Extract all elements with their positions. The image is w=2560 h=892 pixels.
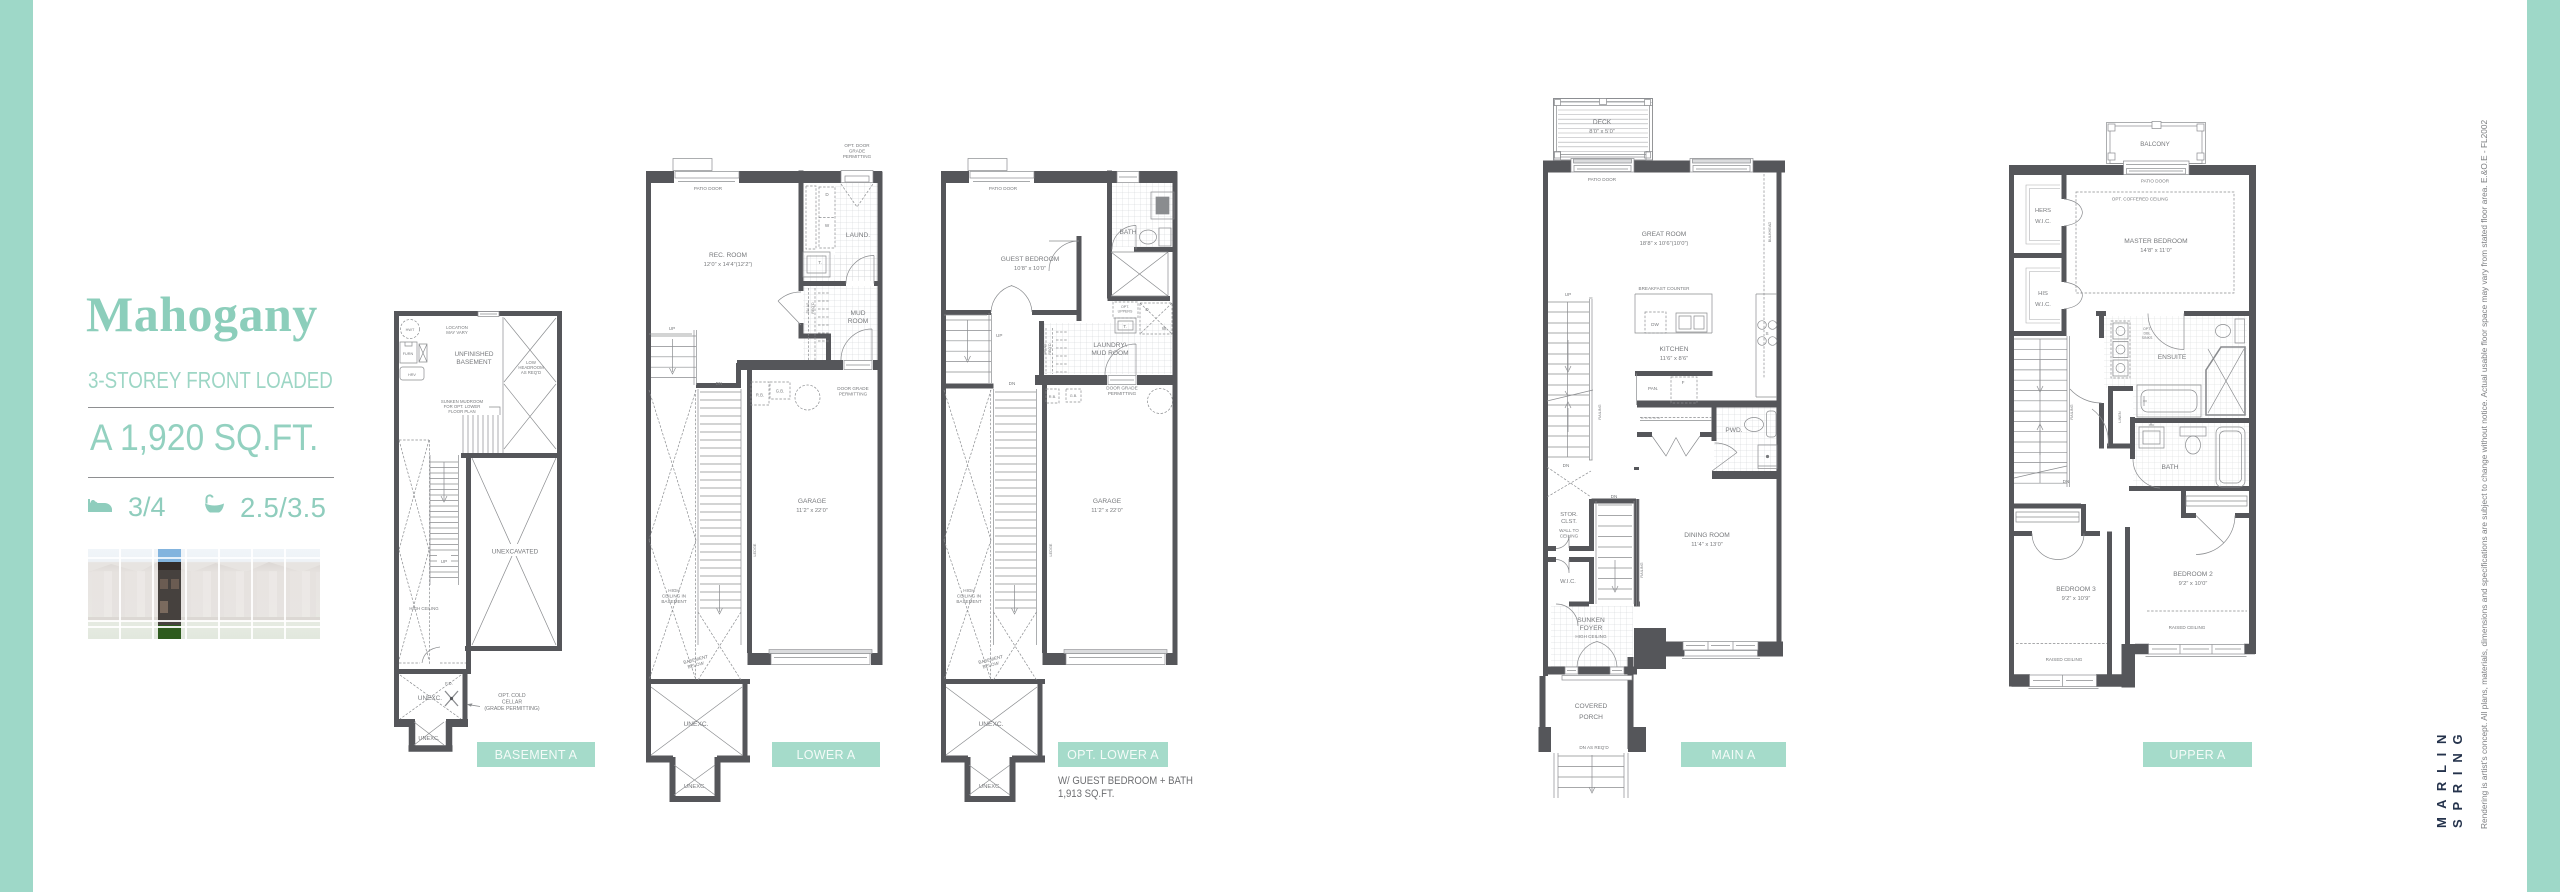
svg-text:RAISED CEILING: RAISED CEILING bbox=[2169, 625, 2206, 630]
svg-text:DN AS REQ’D: DN AS REQ’D bbox=[1579, 745, 1609, 750]
svg-text:GUEST BEDROOM: GUEST BEDROOM bbox=[1001, 256, 1060, 263]
svg-text:DINING ROOM: DINING ROOM bbox=[1684, 532, 1729, 539]
svg-text:11’2” x 22’0”: 11’2” x 22’0” bbox=[1091, 508, 1123, 514]
svg-text:UP: UP bbox=[669, 326, 675, 331]
svg-text:BATH: BATH bbox=[1119, 229, 1136, 236]
svg-text:GRADE: GRADE bbox=[849, 149, 865, 154]
svg-text:DN AS: DN AS bbox=[1043, 343, 1047, 354]
svg-text:FLOOR PLAN: FLOOR PLAN bbox=[448, 409, 475, 414]
svg-text:DBL: DBL bbox=[2144, 332, 2151, 336]
svg-text:UNEXC.: UNEXC. bbox=[979, 784, 1001, 790]
svg-text:OPT.: OPT. bbox=[1121, 305, 1129, 309]
svg-text:HERS: HERS bbox=[2035, 208, 2051, 214]
svg-text:UNEXC.: UNEXC. bbox=[684, 721, 709, 728]
svg-text:10’8” x 10’0”: 10’8” x 10’0” bbox=[1014, 266, 1046, 272]
svg-text:W: W bbox=[1162, 326, 1167, 331]
svg-text:PWD.: PWD. bbox=[1725, 427, 1742, 434]
svg-text:DW: DW bbox=[1651, 322, 1659, 327]
svg-text:S: S bbox=[1765, 331, 1768, 336]
svg-text:REQ’D: REQ’D bbox=[811, 302, 815, 314]
svg-text:BEDROOM 3: BEDROOM 3 bbox=[2056, 586, 2096, 593]
svg-text:OPT. COFFERED CEILING: OPT. COFFERED CEILING bbox=[2112, 197, 2169, 202]
svg-text:DOOR GRADE: DOOR GRADE bbox=[837, 386, 868, 391]
svg-text:T.: T. bbox=[818, 260, 822, 265]
svg-text:DN: DN bbox=[1563, 463, 1570, 468]
svg-text:RAILING: RAILING bbox=[1640, 562, 1644, 577]
svg-text:BULKHEAD: BULKHEAD bbox=[1768, 222, 1772, 243]
svg-text:HIGH: HIGH bbox=[963, 588, 974, 593]
svg-text:UP: UP bbox=[1565, 292, 1571, 297]
svg-text:W: W bbox=[825, 223, 830, 228]
svg-text:ENSUITE: ENSUITE bbox=[2158, 354, 2187, 361]
svg-text:SUNKEN: SUNKEN bbox=[1577, 617, 1605, 624]
svg-text:BASEMENT: BASEMENT bbox=[956, 599, 981, 604]
svg-text:UNEXCAVATED: UNEXCAVATED bbox=[492, 549, 539, 556]
svg-text:(GRADE PERMITTING): (GRADE PERMITTING) bbox=[484, 706, 540, 712]
svg-text:DECK: DECK bbox=[1593, 119, 1612, 126]
svg-text:OPT.: OPT. bbox=[2143, 327, 2151, 331]
svg-text:GREAT ROOM: GREAT ROOM bbox=[1642, 231, 1686, 238]
svg-text:RAILING: RAILING bbox=[1598, 404, 1602, 419]
svg-text:PATIO DOOR: PATIO DOOR bbox=[1588, 177, 1617, 182]
svg-text:MUD: MUD bbox=[850, 310, 865, 317]
svg-text:CEILING: CEILING bbox=[1560, 534, 1579, 539]
svg-text:CELLAR: CELLAR bbox=[502, 700, 522, 706]
svg-text:D: D bbox=[825, 192, 829, 197]
svg-text:LEDGE: LEDGE bbox=[1049, 543, 1053, 556]
svg-text:BASEMENT: BASEMENT bbox=[456, 359, 491, 366]
svg-text:UNEXC.: UNEXC. bbox=[418, 736, 440, 742]
svg-text:UPPERS: UPPERS bbox=[1118, 310, 1133, 314]
svg-text:9’2” x 10’0”: 9’2” x 10’0” bbox=[2179, 581, 2208, 587]
svg-text:G.B.: G.B. bbox=[1070, 394, 1078, 398]
svg-text:MASTER BEDROOM: MASTER BEDROOM bbox=[2124, 238, 2187, 245]
svg-text:PATIO DOOR: PATIO DOOR bbox=[694, 186, 723, 191]
svg-text:12’0” x 14’4”(12’2”): 12’0” x 14’4”(12’2”) bbox=[704, 262, 753, 268]
svg-text:D: D bbox=[1145, 307, 1149, 312]
svg-text:LAUND.: LAUND. bbox=[846, 232, 870, 239]
svg-text:DN: DN bbox=[2063, 479, 2070, 484]
svg-text:HIS: HIS bbox=[2038, 291, 2048, 297]
svg-text:LAUNDRY\: LAUNDRY\ bbox=[1093, 342, 1126, 349]
svg-text:CEILING IN: CEILING IN bbox=[957, 594, 981, 599]
svg-text:HWT: HWT bbox=[406, 328, 415, 332]
svg-text:SINKS: SINKS bbox=[2142, 336, 2153, 340]
svg-text:KITCHEN: KITCHEN bbox=[1660, 346, 1689, 353]
svg-text:GARAGE: GARAGE bbox=[798, 498, 827, 505]
svg-text:F: F bbox=[1682, 380, 1685, 385]
svg-text:GARAGE: GARAGE bbox=[1093, 498, 1122, 505]
svg-text:ROOM: ROOM bbox=[848, 318, 869, 325]
svg-text:CLST.: CLST. bbox=[1561, 519, 1577, 525]
svg-text:W.I.C.: W.I.C. bbox=[2035, 219, 2051, 225]
svg-text:R.B.: R.B. bbox=[1049, 395, 1056, 399]
svg-text:W.I.C.: W.I.C. bbox=[2035, 302, 2051, 308]
svg-text:STOR.: STOR. bbox=[1560, 512, 1578, 518]
svg-text:REC. ROOM: REC. ROOM bbox=[709, 252, 747, 259]
svg-text:11’2” x 22’0”: 11’2” x 22’0” bbox=[796, 508, 828, 514]
svg-text:11’4” x 13’0”: 11’4” x 13’0” bbox=[1691, 542, 1723, 548]
svg-text:AS REQ’D: AS REQ’D bbox=[521, 370, 541, 375]
svg-text:HRV: HRV bbox=[408, 373, 416, 377]
svg-text:HIGH: HIGH bbox=[668, 588, 679, 593]
svg-text:BATH: BATH bbox=[2161, 464, 2178, 471]
svg-text:T.: T. bbox=[1123, 324, 1127, 329]
svg-text:FOYER: FOYER bbox=[1580, 625, 1603, 632]
svg-text:DN AS: DN AS bbox=[806, 302, 810, 313]
svg-text:PAN.: PAN. bbox=[1648, 386, 1658, 391]
svg-text:OPT. DOOR: OPT. DOOR bbox=[844, 143, 870, 148]
svg-text:DN: DN bbox=[716, 381, 723, 386]
svg-text:UNFINISHED: UNFINISHED bbox=[454, 351, 493, 358]
svg-text:COVERED: COVERED bbox=[1575, 703, 1608, 710]
svg-text:BALCONY: BALCONY bbox=[2140, 141, 2170, 148]
svg-text:DOOR GRADE: DOOR GRADE bbox=[1106, 386, 1137, 391]
svg-text:MUD ROOM: MUD ROOM bbox=[1091, 350, 1128, 357]
svg-text:9’2” x 10’9”: 9’2” x 10’9” bbox=[2062, 596, 2091, 602]
svg-text:UNEXC.: UNEXC. bbox=[979, 721, 1004, 728]
svg-text:PATIO DOOR: PATIO DOOR bbox=[2141, 179, 2170, 184]
svg-text:MAY VARY: MAY VARY bbox=[446, 330, 468, 335]
svg-text:DN: DN bbox=[1009, 381, 1016, 386]
svg-text:REQ’D: REQ’D bbox=[1048, 343, 1052, 355]
svg-text:UNEXC.: UNEXC. bbox=[418, 695, 442, 702]
svg-text:RAISED CEILING: RAISED CEILING bbox=[2046, 657, 2083, 662]
svg-text:CEILING IN: CEILING IN bbox=[662, 594, 686, 599]
svg-text:BASEMENT: BASEMENT bbox=[661, 599, 686, 604]
svg-text:HIGH CEILING: HIGH CEILING bbox=[409, 606, 439, 611]
svg-text:R.B.: R.B. bbox=[756, 393, 764, 398]
svg-text:BEDROOM 2: BEDROOM 2 bbox=[2173, 571, 2213, 578]
svg-text:8’0” x 5’0”: 8’0” x 5’0” bbox=[1589, 129, 1615, 135]
svg-text:WALL TO: WALL TO bbox=[1559, 528, 1579, 533]
svg-text:PERMITTING: PERMITTING bbox=[839, 392, 868, 397]
svg-text:PERMITTING: PERMITTING bbox=[843, 154, 872, 159]
svg-text:PERMITTING: PERMITTING bbox=[1108, 391, 1137, 396]
svg-text:PORCH: PORCH bbox=[1579, 714, 1603, 721]
svg-text:RAILING: RAILING bbox=[2070, 404, 2074, 419]
svg-text:11’6” x 8’6”: 11’6” x 8’6” bbox=[1660, 356, 1688, 362]
svg-text:HIGH CEILING: HIGH CEILING bbox=[1575, 634, 1607, 639]
svg-text:UP: UP bbox=[996, 333, 1002, 338]
svg-text:LEDGE: LEDGE bbox=[753, 543, 757, 556]
svg-text:FURN: FURN bbox=[403, 352, 414, 356]
svg-text:PATIO DOOR: PATIO DOOR bbox=[989, 186, 1018, 191]
svg-text:G.B.: G.B. bbox=[776, 389, 784, 394]
svg-text:14’8” x 11’0”: 14’8” x 11’0” bbox=[2140, 248, 2172, 254]
svg-text:UP: UP bbox=[441, 559, 447, 564]
svg-text:UNEXC.: UNEXC. bbox=[684, 784, 706, 790]
svg-text:BREAKFAST COUNTER: BREAKFAST COUNTER bbox=[1639, 286, 1691, 291]
svg-text:18’8” x 10’6”(10’0”): 18’8” x 10’6”(10’0”) bbox=[1640, 241, 1689, 247]
svg-text:OPT. COLD: OPT. COLD bbox=[498, 693, 526, 699]
svg-text:LINEN: LINEN bbox=[2118, 411, 2122, 422]
svg-text:DN: DN bbox=[1611, 494, 1618, 499]
svg-text:F.D.: F.D. bbox=[445, 681, 453, 686]
svg-text:W.I.C.: W.I.C. bbox=[1560, 579, 1576, 585]
